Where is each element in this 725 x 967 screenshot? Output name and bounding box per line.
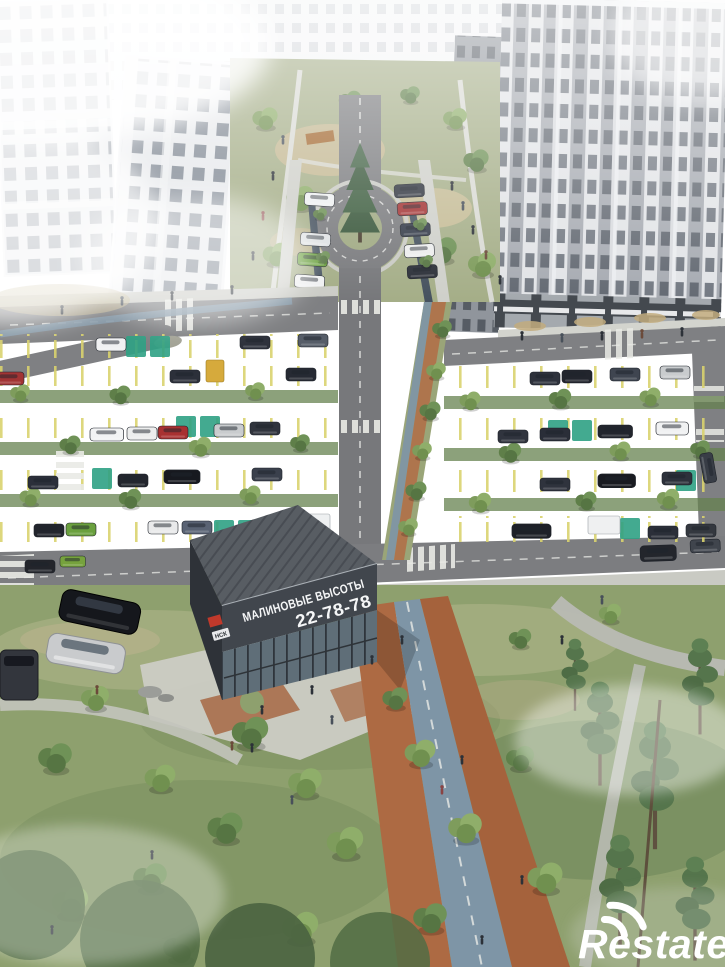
tree (20, 488, 41, 508)
person (250, 743, 253, 753)
tree (549, 389, 571, 411)
person (560, 635, 563, 645)
green-median (444, 448, 725, 461)
car (28, 476, 58, 489)
planter (574, 317, 606, 327)
landscape-rock (158, 694, 174, 702)
person (290, 795, 293, 805)
crosswalk (339, 420, 381, 433)
crosswalk (339, 300, 381, 314)
tree (469, 493, 491, 515)
tree (610, 442, 631, 462)
car (656, 422, 688, 435)
tree (110, 386, 131, 406)
green-median (0, 494, 338, 507)
tree (119, 489, 141, 511)
car (540, 478, 570, 491)
eco-stall (126, 336, 146, 357)
tree (460, 392, 481, 412)
person (600, 595, 603, 605)
person (640, 329, 643, 339)
watermark-text: Restate (578, 921, 725, 967)
green-median (0, 442, 338, 455)
render-image: НСК МАЛИНОВЫЕ ВЫСОТЫ 22-78-78 (0, 0, 725, 967)
person (460, 755, 463, 765)
car (662, 472, 692, 485)
parking-stalls (444, 516, 725, 542)
crosswalk (405, 544, 455, 572)
car (250, 422, 280, 435)
person (680, 327, 683, 337)
eco-stall (572, 420, 592, 441)
tree (60, 436, 81, 456)
car (610, 368, 640, 381)
car (298, 334, 328, 347)
tree (576, 492, 597, 512)
crosswalk (600, 328, 634, 360)
person (560, 333, 563, 343)
car (648, 526, 678, 539)
person (520, 875, 523, 885)
car (96, 338, 126, 351)
car (530, 372, 560, 385)
car (214, 424, 244, 437)
box-truck (588, 516, 620, 534)
planter (514, 321, 546, 331)
car (170, 370, 200, 383)
car (25, 560, 55, 573)
cloud (80, 195, 310, 325)
car (562, 370, 592, 383)
car (240, 336, 270, 349)
person (440, 785, 443, 795)
tree (499, 443, 521, 465)
person (310, 685, 313, 695)
person (330, 715, 333, 725)
green-median (0, 390, 338, 403)
car (127, 427, 157, 440)
truck (206, 360, 224, 382)
car (90, 428, 124, 441)
planter (634, 313, 666, 323)
eco-stall (620, 518, 640, 539)
person (260, 705, 263, 715)
car (158, 426, 188, 439)
car (640, 545, 677, 562)
person (480, 935, 483, 945)
person (230, 741, 233, 751)
car (60, 556, 86, 567)
car (148, 521, 178, 534)
planter (692, 310, 720, 320)
tree (10, 384, 30, 403)
eco-stall (150, 336, 170, 357)
person (520, 331, 523, 341)
car (660, 366, 690, 379)
eco-stall (92, 468, 112, 489)
car (182, 521, 212, 534)
person (95, 685, 98, 695)
car (498, 430, 528, 443)
car (118, 474, 148, 487)
person (400, 635, 403, 645)
car (512, 524, 551, 538)
car (34, 524, 64, 537)
car (598, 474, 636, 488)
van-dark (0, 650, 38, 700)
car (598, 425, 633, 438)
green-median (444, 396, 725, 409)
crosswalk (56, 450, 84, 494)
tree (189, 437, 211, 459)
car (540, 428, 570, 441)
car (686, 524, 716, 537)
car (66, 523, 96, 536)
car (252, 468, 282, 481)
person (600, 331, 603, 341)
person (370, 655, 373, 665)
car (286, 368, 316, 381)
car (0, 372, 24, 385)
car (164, 470, 200, 484)
landscape-rock (138, 686, 162, 698)
tree (640, 388, 661, 408)
